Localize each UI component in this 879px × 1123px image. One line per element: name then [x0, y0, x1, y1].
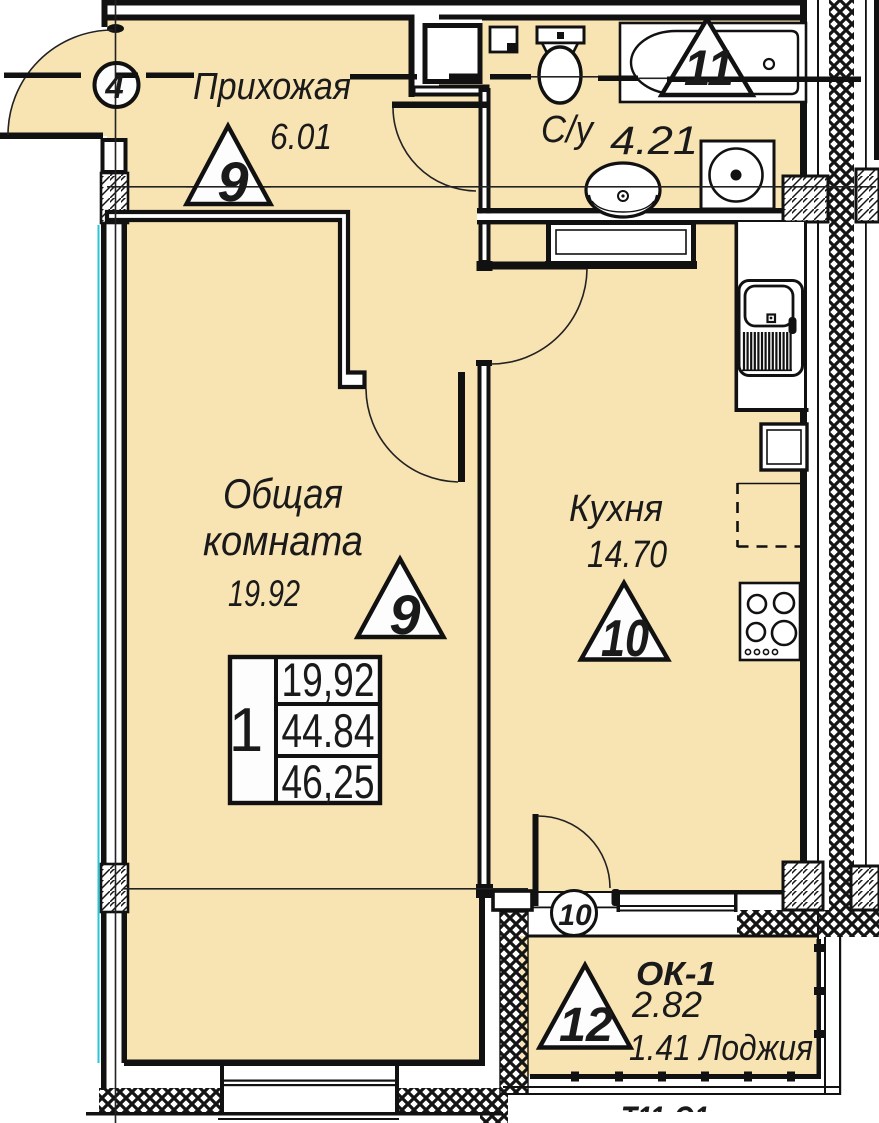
- svg-text:9: 9: [389, 583, 420, 646]
- svg-text:1: 1: [229, 696, 263, 765]
- svg-text:44.84: 44.84: [282, 704, 375, 757]
- svg-text:4: 4: [104, 68, 123, 105]
- svg-text:12: 12: [559, 999, 613, 1052]
- svg-text:Прихожая: Прихожая: [193, 66, 351, 108]
- svg-text:4.21: 4.21: [610, 119, 698, 163]
- svg-text:10: 10: [601, 610, 649, 668]
- svg-text:6.01: 6.01: [270, 116, 332, 157]
- svg-text:2.82: 2.82: [631, 984, 702, 1025]
- svg-text:1.41 Лоджия: 1.41 Лоджия: [629, 1027, 813, 1068]
- svg-text:10: 10: [558, 899, 592, 932]
- svg-text:11: 11: [684, 40, 734, 96]
- svg-text:9: 9: [217, 150, 248, 213]
- svg-text:46,25: 46,25: [282, 755, 375, 808]
- svg-text:С/у: С/у: [541, 109, 595, 151]
- svg-text:19,92: 19,92: [282, 653, 375, 706]
- svg-text:19.92: 19.92: [228, 573, 300, 614]
- svg-text:комната: комната: [203, 517, 363, 564]
- svg-text:14.70: 14.70: [587, 534, 667, 576]
- svg-text:Общая: Общая: [223, 470, 343, 517]
- svg-text:Кухня: Кухня: [569, 488, 663, 530]
